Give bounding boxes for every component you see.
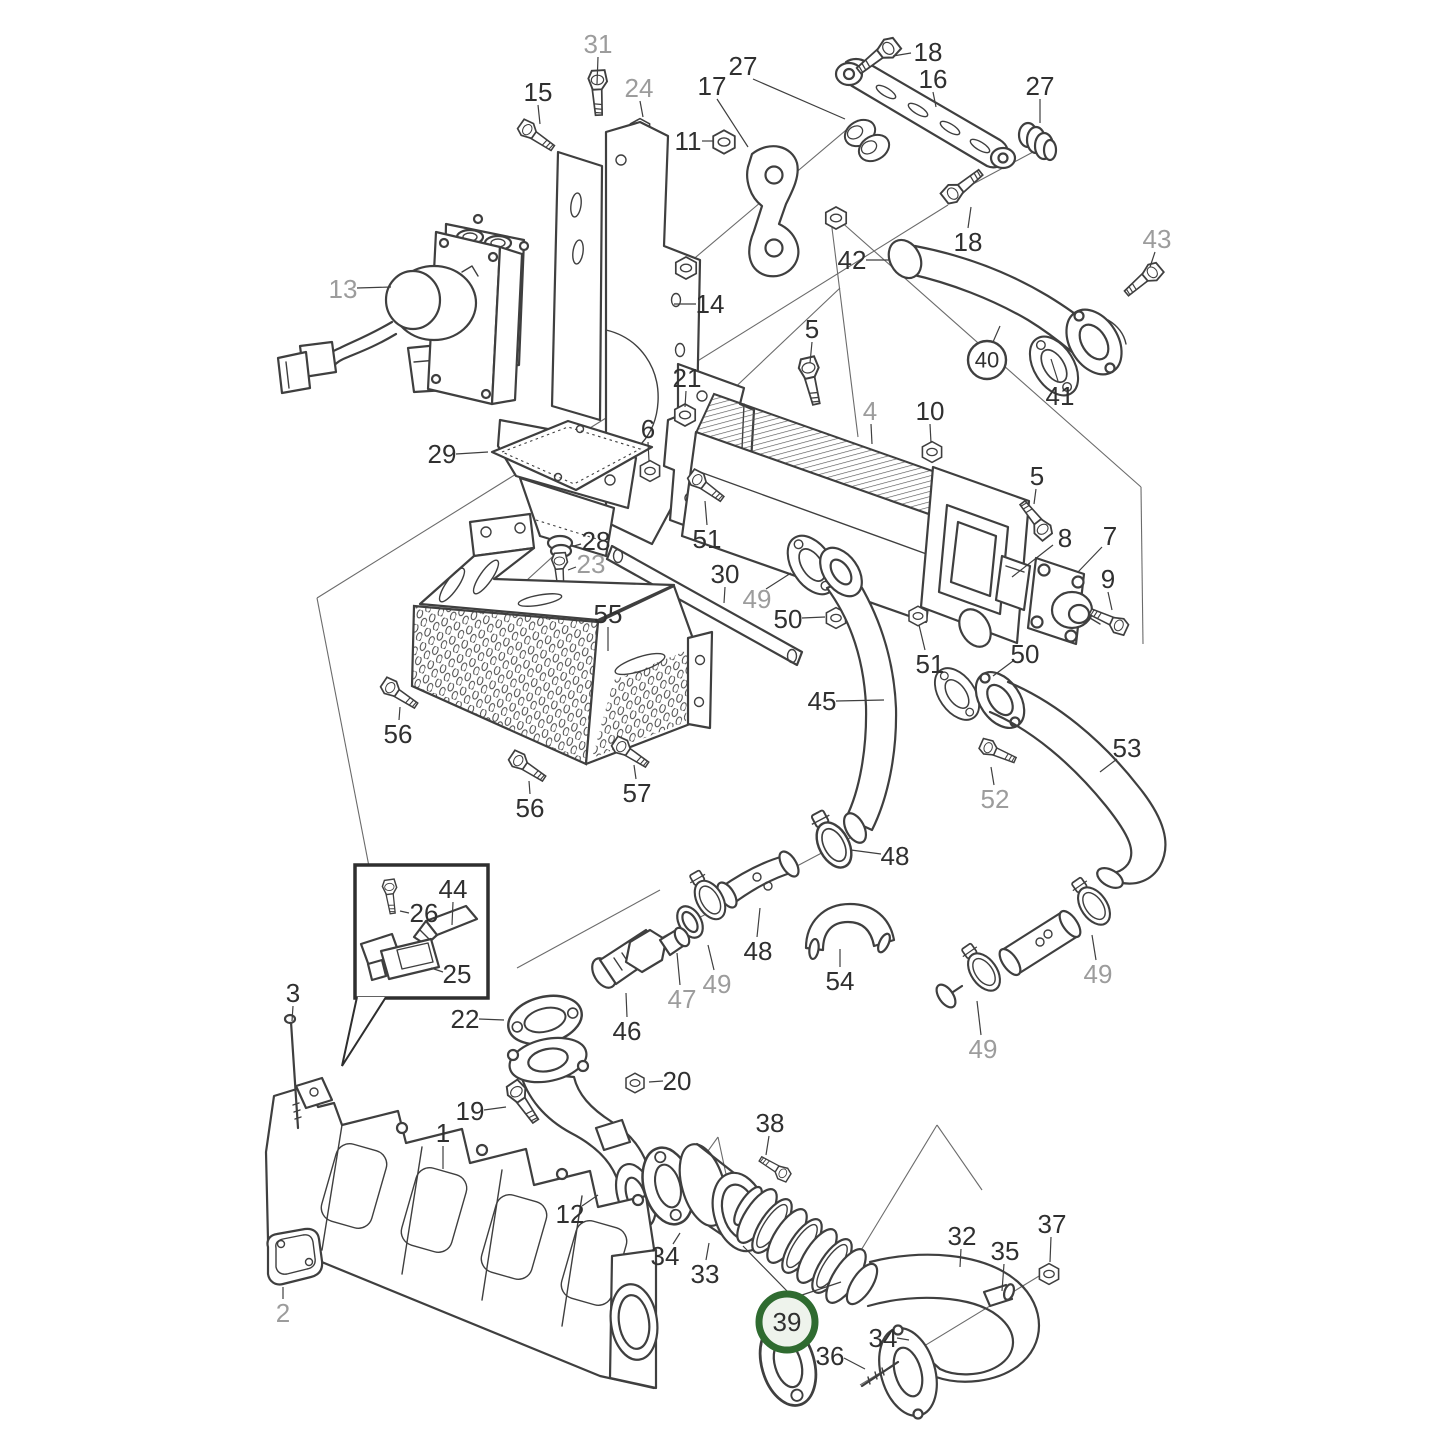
part-label-30-29: 30 xyxy=(711,559,740,589)
part-label-18-9: 18 xyxy=(954,227,983,257)
leader-line-22 xyxy=(479,1019,504,1020)
egr-actuator-13 xyxy=(278,215,528,404)
part-label-32-65: 32 xyxy=(948,1221,977,1251)
part-label-27-7: 27 xyxy=(1026,71,1055,101)
part-label-55-30: 55 xyxy=(594,599,623,629)
leader-line-5 xyxy=(1034,489,1036,504)
part-label-11-8: 11 xyxy=(675,126,702,156)
leader-line-9 xyxy=(1108,592,1112,610)
part-label-53-36: 53 xyxy=(1113,733,1142,763)
part-label-6-19: 6 xyxy=(641,414,655,444)
part-label-24-2: 24 xyxy=(625,73,654,103)
leader-line-20 xyxy=(649,1081,663,1082)
part-label-33-59: 33 xyxy=(691,1259,720,1289)
leader-line-37 xyxy=(1050,1237,1051,1262)
part-label-2-60: 2 xyxy=(276,1298,290,1328)
part-label-48-42: 48 xyxy=(744,936,773,966)
flex-bellows-39 xyxy=(729,1183,883,1309)
part-label-43-11: 43 xyxy=(1143,224,1172,254)
part-label-36-63: 36 xyxy=(816,1341,845,1371)
part-label-40-12: 40 xyxy=(975,348,999,373)
leader-line-48 xyxy=(757,908,760,937)
part-label-4-20: 4 xyxy=(863,396,877,426)
leader-line-27 xyxy=(753,79,845,119)
part-label-51-33: 51 xyxy=(916,649,945,679)
part-label-54-43: 54 xyxy=(826,966,855,996)
leader-line-15 xyxy=(538,105,540,124)
diagram-canvas: 3115241727181627111842434041131429521641… xyxy=(0,0,1445,1445)
part-label-50-34: 50 xyxy=(1011,639,1040,669)
part-label-56-39: 56 xyxy=(516,793,545,823)
part-label-39-62: 39 xyxy=(773,1307,802,1337)
part-label-47-45: 47 xyxy=(668,984,697,1014)
bolt-15 xyxy=(516,118,558,154)
part-label-49-47: 49 xyxy=(1084,959,1113,989)
part-label-19-55: 19 xyxy=(456,1096,485,1126)
part-label-57-40: 57 xyxy=(623,778,652,808)
part-label-52-37: 52 xyxy=(981,784,1010,814)
leader-line-49 xyxy=(1092,935,1096,960)
part-label-48-41: 48 xyxy=(881,841,910,871)
leader-line-52 xyxy=(991,767,994,785)
part-label-46-46: 46 xyxy=(613,1016,642,1046)
leader-line-47 xyxy=(677,953,680,985)
leader-line-40 xyxy=(993,326,1000,342)
leader-line-4 xyxy=(871,424,872,444)
leader-line-29 xyxy=(456,452,488,454)
leader-line-10 xyxy=(930,424,931,443)
part-label-26-50: 26 xyxy=(410,898,439,928)
part-label-18-5: 18 xyxy=(914,37,943,67)
leader-line-48 xyxy=(851,850,881,854)
part-label-34-64: 34 xyxy=(869,1323,898,1353)
leader-line-13 xyxy=(357,287,391,288)
mounting-bracket-14 xyxy=(498,122,700,556)
part-label-14-15: 14 xyxy=(696,289,725,319)
leader-line-57 xyxy=(634,765,636,779)
leader-line-24 xyxy=(640,101,643,117)
part-label-12-57: 12 xyxy=(556,1199,585,1229)
leader-line-23 xyxy=(568,567,576,570)
part-label-23-28: 23 xyxy=(577,549,606,579)
leader-line-50 xyxy=(802,617,825,618)
part-label-5-22: 5 xyxy=(1030,461,1044,491)
part-label-7-24: 7 xyxy=(1103,521,1117,551)
leader-line-30 xyxy=(724,587,725,603)
part-label-20-54: 20 xyxy=(663,1066,692,1096)
leader-line-49 xyxy=(708,945,714,970)
part-label-31-0: 31 xyxy=(584,29,613,59)
exploded-parts-diagram: 3115241727181627111842434041131429521641… xyxy=(0,0,1445,1445)
end-plate-2 xyxy=(267,1229,322,1285)
part-label-49-48: 49 xyxy=(969,1034,998,1064)
part-label-10-21: 10 xyxy=(916,396,945,426)
leader-line-38 xyxy=(766,1136,769,1155)
leader-line-18 xyxy=(968,207,971,228)
bolt-31 xyxy=(588,70,609,116)
part-label-34-58: 34 xyxy=(651,1241,680,1271)
part-label-42-10: 42 xyxy=(838,245,867,275)
coolant-pipe-42-group xyxy=(882,234,1165,404)
part-label-37-67: 37 xyxy=(1038,1209,1067,1239)
part-label-35-66: 35 xyxy=(991,1236,1020,1266)
leader-line-51 xyxy=(919,625,925,650)
heat-shield-55 xyxy=(379,514,712,785)
part-label-50-32: 50 xyxy=(774,604,803,634)
part-label-16-6: 16 xyxy=(919,64,948,94)
leader-line-46 xyxy=(626,993,627,1017)
part-label-44-49: 44 xyxy=(439,874,468,904)
part-label-8-23: 8 xyxy=(1058,523,1072,553)
part-label-17-3: 17 xyxy=(698,71,727,101)
part-label-5-17: 5 xyxy=(805,314,819,344)
leader-line-36 xyxy=(844,1358,865,1369)
part-label-38-61: 38 xyxy=(756,1108,785,1138)
coolant-pipe-53-chain xyxy=(926,660,1166,1011)
part-label-25-51: 25 xyxy=(443,959,472,989)
leader-line-19 xyxy=(484,1107,506,1110)
leader-line-33 xyxy=(706,1243,709,1260)
part-label-9-25: 9 xyxy=(1101,564,1115,594)
leader-line-32 xyxy=(960,1249,961,1267)
part-label-56-38: 56 xyxy=(384,719,413,749)
part-label-1-56: 1 xyxy=(436,1118,450,1148)
part-label-15-1: 15 xyxy=(524,77,553,107)
part-label-21-18: 21 xyxy=(673,363,702,393)
elbow-hose-54 xyxy=(806,904,894,960)
part-label-3-53: 3 xyxy=(286,978,300,1008)
leader-line-49 xyxy=(977,1001,981,1035)
part-label-27-4: 27 xyxy=(729,51,758,81)
part-label-51-26: 51 xyxy=(693,524,722,554)
part-label-29-16: 29 xyxy=(428,439,457,469)
part-label-41-13: 41 xyxy=(1046,381,1075,411)
part-label-49-31: 49 xyxy=(743,584,772,614)
leader-line-7 xyxy=(1078,547,1102,572)
part-label-13-14: 13 xyxy=(329,274,358,304)
part-label-45-35: 45 xyxy=(808,686,837,716)
part-label-22-52: 22 xyxy=(451,1004,480,1034)
part-label-49-44: 49 xyxy=(703,969,732,999)
